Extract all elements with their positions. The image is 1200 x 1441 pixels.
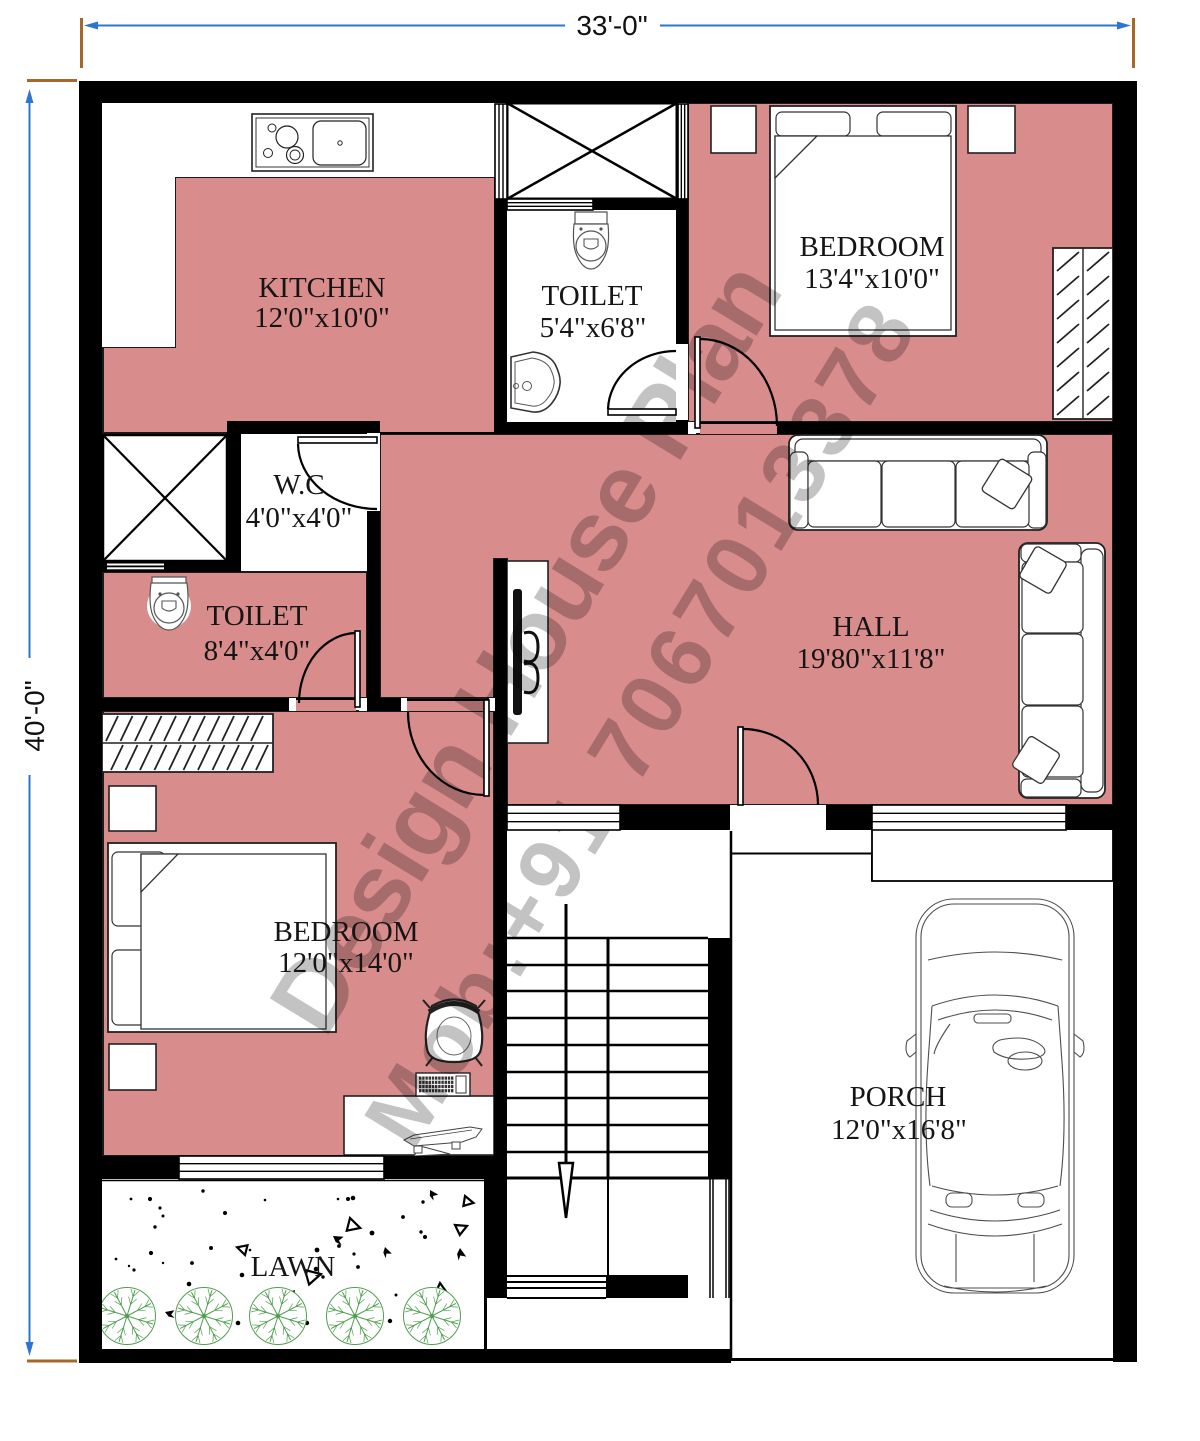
svg-text:HALL: HALL <box>832 611 909 643</box>
svg-text:19'80"x11'8": 19'80"x11'8" <box>796 643 945 675</box>
svg-text:LAWN: LAWN <box>251 1251 336 1283</box>
svg-text:5'4"x6'8": 5'4"x6'8" <box>540 312 647 344</box>
svg-text:12'0"x14'0": 12'0"x14'0" <box>278 947 414 979</box>
svg-text:4'0"x4'0": 4'0"x4'0" <box>246 502 353 534</box>
svg-text:BEDROOM: BEDROOM <box>799 231 944 263</box>
svg-text:KITCHEN: KITCHEN <box>258 272 385 304</box>
svg-text:BEDROOM: BEDROOM <box>273 916 418 948</box>
svg-text:8'4"x4'0": 8'4"x4'0" <box>204 635 311 667</box>
svg-text:TOILET: TOILET <box>207 600 308 632</box>
svg-text:12'0"x10'0": 12'0"x10'0" <box>254 302 390 334</box>
svg-text:13'4"x10'0": 13'4"x10'0" <box>804 263 940 295</box>
svg-text:TOILET: TOILET <box>542 280 643 312</box>
svg-text:12'0"x16'8": 12'0"x16'8" <box>831 1114 967 1146</box>
svg-text:33'-0": 33'-0" <box>576 10 647 41</box>
svg-text:W.C: W.C <box>273 469 324 501</box>
svg-text:40'-0": 40'-0" <box>19 680 50 751</box>
svg-text:PORCH: PORCH <box>850 1081 947 1113</box>
